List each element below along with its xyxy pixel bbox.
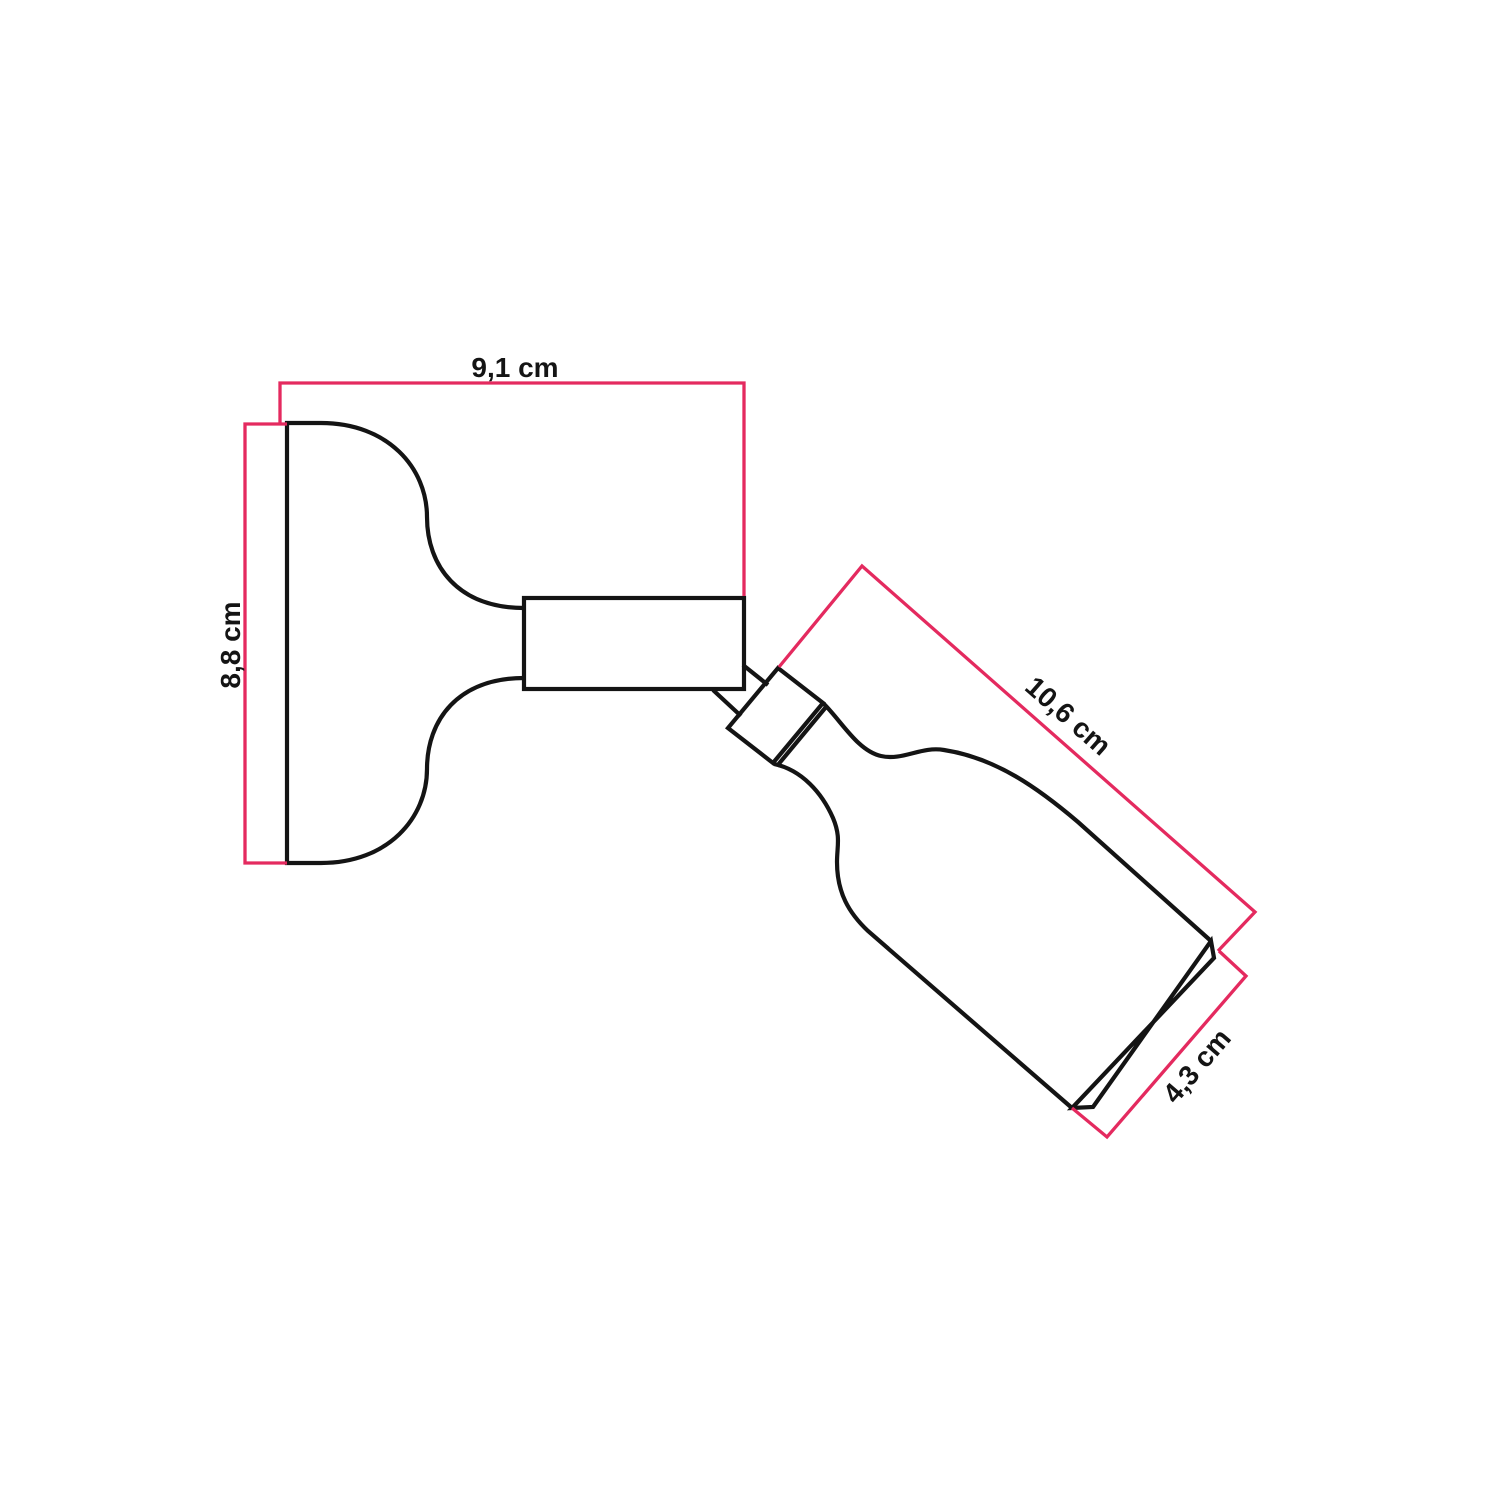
- lamp-holder-lower-edge: [774, 764, 1072, 1108]
- dimension-label-width: 9,1 cm: [471, 352, 558, 383]
- dimension-line-width: [280, 383, 744, 596]
- dimension-drawing: 9,1 cm 8,8 cm 10,6 cm 4,3 cm: [0, 0, 1500, 1500]
- swivel-joint-rim: [777, 707, 826, 766]
- mount-body: [524, 598, 744, 689]
- outline-group: [287, 423, 1214, 1108]
- label-group: 9,1 cm 8,8 cm 10,6 cm 4,3 cm: [215, 352, 1237, 1109]
- drawing-canvas: 9,1 cm 8,8 cm 10,6 cm 4,3 cm: [0, 0, 1500, 1500]
- dimension-label-height: 8,8 cm: [215, 601, 246, 688]
- dimension-group: [245, 383, 1255, 1137]
- wall-plate-outline: [287, 423, 524, 863]
- dimension-line-length: [779, 566, 1255, 951]
- dimension-line-height: [245, 424, 287, 863]
